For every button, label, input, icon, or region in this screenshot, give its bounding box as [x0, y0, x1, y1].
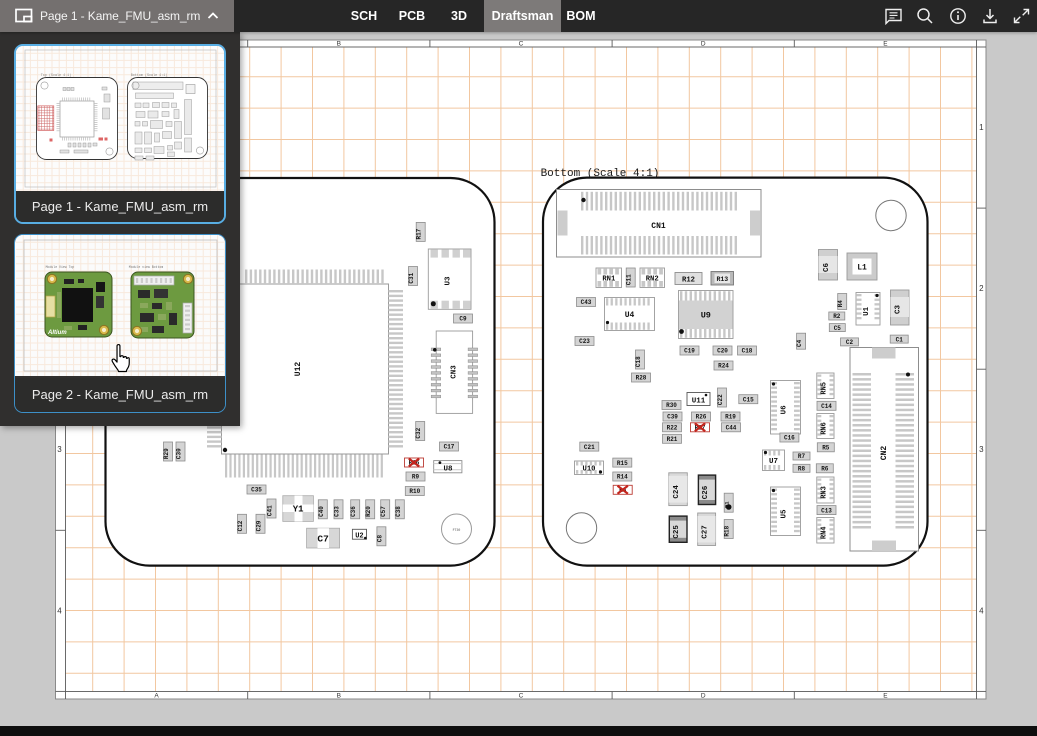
svg-text:C26: C26: [702, 485, 710, 499]
svg-text:C: C: [519, 41, 524, 48]
svg-text:R5: R5: [822, 445, 830, 452]
svg-text:C19: C19: [684, 348, 695, 355]
svg-text:RN5: RN5: [820, 382, 828, 395]
svg-text:Module View Top: Module View Top: [46, 265, 75, 269]
svg-text:C33: C33: [334, 506, 341, 517]
svg-text:Top (Scale 4:1): Top (Scale 4:1): [41, 73, 72, 78]
svg-text:C18: C18: [635, 356, 642, 367]
svg-text:U11: U11: [692, 398, 706, 406]
svg-text:E: E: [883, 692, 888, 699]
svg-text:R2: R2: [833, 313, 841, 320]
svg-text:C27: C27: [702, 525, 710, 539]
svg-text:C31: C31: [408, 272, 415, 283]
svg-text:U9: U9: [701, 310, 711, 320]
svg-text:C44: C44: [726, 425, 737, 432]
svg-text:C41: C41: [267, 505, 274, 516]
svg-text:R21: R21: [667, 436, 678, 443]
svg-text:C1: C1: [896, 336, 904, 343]
svg-text:C8: C8: [376, 535, 383, 543]
svg-text:C21: C21: [584, 444, 595, 451]
svg-text:U4: U4: [625, 311, 635, 320]
svg-text:R17: R17: [416, 228, 423, 239]
svg-text:C15: C15: [743, 396, 754, 403]
svg-text:R8: R8: [798, 466, 806, 473]
svg-text:C39: C39: [667, 414, 678, 421]
svg-text:R19: R19: [725, 414, 736, 421]
svg-text:Y1: Y1: [293, 505, 304, 515]
svg-text:CN3: CN3: [451, 365, 459, 379]
svg-text:U8: U8: [443, 465, 453, 473]
svg-text:C12: C12: [237, 520, 244, 531]
svg-text:C35: C35: [251, 487, 262, 494]
svg-text:U6: U6: [781, 405, 789, 415]
svg-text:D: D: [701, 692, 706, 699]
svg-text:FT30: FT30: [453, 528, 461, 532]
svg-text:C: C: [519, 692, 524, 699]
svg-text:U12: U12: [294, 362, 303, 377]
svg-text:Bottom (Scale 4:1): Bottom (Scale 4:1): [541, 168, 660, 180]
svg-text:U5: U5: [781, 509, 789, 519]
svg-text:RN6: RN6: [820, 422, 828, 435]
svg-text:C13: C13: [821, 507, 832, 514]
svg-text:R18: R18: [724, 525, 731, 536]
svg-text:C11: C11: [626, 274, 633, 285]
svg-text:R24: R24: [718, 363, 729, 370]
svg-text:R7: R7: [798, 453, 806, 460]
svg-text:C38: C38: [395, 506, 402, 517]
svg-text:RN1: RN1: [602, 275, 616, 283]
svg-text:R30: R30: [666, 402, 677, 409]
svg-text:4: 4: [57, 606, 62, 615]
svg-text:C24: C24: [673, 485, 681, 499]
svg-text:C22: C22: [717, 394, 724, 405]
svg-text:1: 1: [979, 123, 984, 132]
svg-text:4: 4: [979, 606, 984, 615]
svg-text:Altium: Altium: [47, 330, 67, 336]
svg-text:U10: U10: [583, 465, 596, 473]
svg-text:A: A: [154, 692, 159, 699]
svg-text:R10: R10: [409, 488, 420, 495]
svg-text:C25: C25: [673, 525, 681, 539]
svg-text:R12: R12: [682, 277, 695, 285]
svg-text:3: 3: [979, 445, 984, 454]
svg-text:R15: R15: [617, 460, 628, 467]
svg-text:U3: U3: [445, 276, 453, 286]
svg-text:C43: C43: [581, 299, 592, 306]
svg-text:L1: L1: [857, 264, 867, 273]
svg-text:Module view Bottom: Module view Bottom: [129, 265, 164, 269]
svg-text:U2: U2: [355, 532, 363, 540]
svg-text:CN1: CN1: [651, 222, 666, 231]
svg-text:RN2: RN2: [646, 275, 659, 283]
svg-text:R26: R26: [696, 414, 707, 421]
svg-text:C23: C23: [579, 338, 590, 345]
svg-text:R20: R20: [365, 506, 372, 517]
svg-text:C3: C3: [895, 305, 903, 315]
svg-text:Bottom (Scale 4:1): Bottom (Scale 4:1): [131, 73, 168, 78]
svg-text:C14: C14: [821, 403, 832, 410]
svg-text:R13: R13: [716, 276, 728, 283]
svg-text:C6: C6: [823, 263, 831, 273]
svg-text:R6: R6: [821, 466, 829, 473]
svg-text:B: B: [337, 692, 341, 699]
svg-text:C2: C2: [846, 339, 854, 346]
svg-text:R14: R14: [617, 474, 628, 481]
svg-text:C40: C40: [318, 506, 325, 517]
svg-text:C36: C36: [350, 506, 357, 517]
svg-text:D: D: [701, 41, 706, 48]
svg-text:C18: C18: [742, 348, 753, 355]
svg-text:R9: R9: [412, 474, 420, 481]
svg-text:R22: R22: [667, 425, 678, 432]
svg-text:E: E: [883, 41, 888, 48]
svg-text:2: 2: [979, 284, 984, 293]
svg-text:C4: C4: [796, 339, 803, 347]
svg-text:C30: C30: [176, 448, 183, 459]
svg-text:C7: C7: [317, 534, 329, 545]
svg-text:R29: R29: [163, 448, 170, 459]
svg-text:RN4: RN4: [820, 526, 828, 539]
svg-text:CN2: CN2: [880, 446, 889, 461]
svg-text:C32: C32: [415, 427, 422, 438]
svg-text:B: B: [337, 41, 341, 48]
svg-text:C57: C57: [380, 506, 387, 517]
svg-text:C20: C20: [717, 348, 728, 355]
svg-text:C17: C17: [444, 444, 455, 451]
svg-text:3: 3: [57, 445, 62, 454]
svg-text:C9: C9: [459, 316, 467, 323]
svg-text:C29: C29: [256, 520, 263, 531]
svg-text:R28: R28: [636, 375, 647, 382]
svg-text:U1: U1: [863, 306, 871, 316]
svg-text:RN3: RN3: [820, 486, 828, 499]
svg-text:C5: C5: [834, 325, 842, 332]
svg-text:U7: U7: [769, 458, 778, 466]
svg-text:C16: C16: [784, 435, 795, 442]
svg-text:R4: R4: [837, 300, 844, 308]
